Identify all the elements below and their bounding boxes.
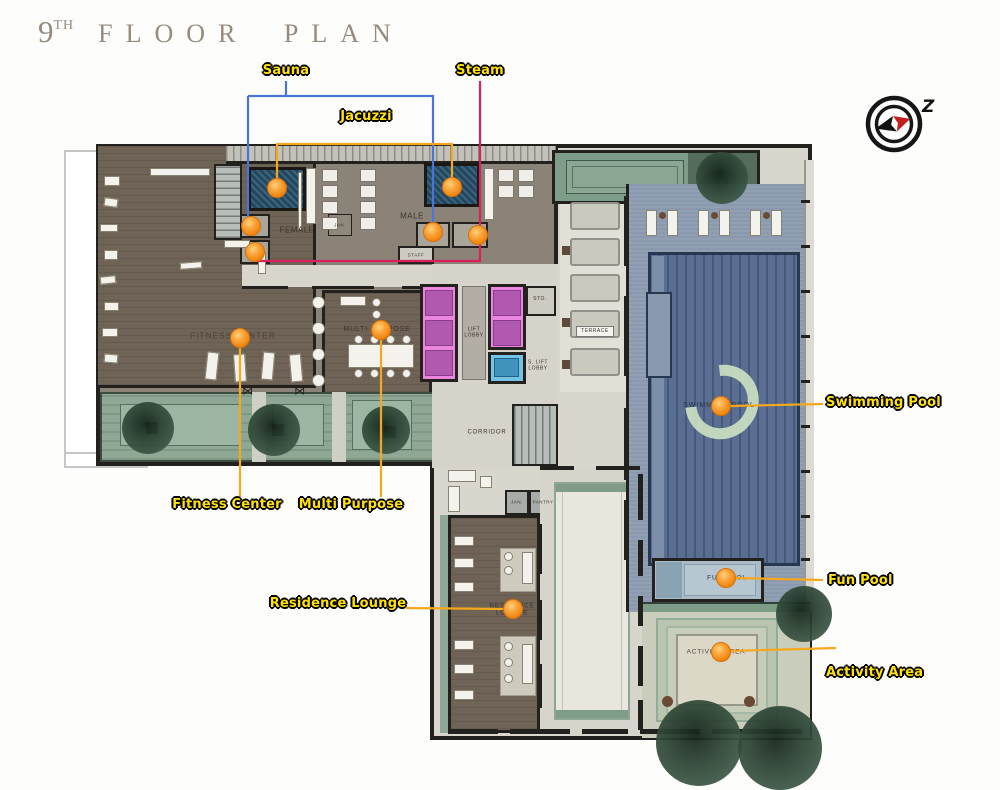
walkway-tick <box>801 245 810 248</box>
wall-segment <box>538 600 542 640</box>
service-lift-lobby-label: S. LIFT LOBBY <box>528 360 548 372</box>
terrace-deck <box>570 348 620 376</box>
side-table <box>372 298 381 307</box>
residence-label-line1: RESIDENCE <box>489 603 534 610</box>
outdoor-deck-edge-left <box>64 150 98 462</box>
wall-segment <box>596 466 640 470</box>
chair <box>504 642 513 651</box>
court-inner-line <box>562 490 622 712</box>
walkway-tick <box>801 470 810 473</box>
chair <box>504 566 513 575</box>
sun-lounger <box>667 210 678 236</box>
terrace-label: TERRACE <box>581 329 608 335</box>
tree <box>656 700 742 786</box>
walkway-tick <box>801 335 810 338</box>
fun-pool-deep-zone <box>656 562 682 598</box>
sun-lounger <box>698 210 709 236</box>
page-title: 9THFLOOR PLAN <box>38 14 404 50</box>
round-chair <box>312 322 325 335</box>
sun-lounger <box>750 210 761 236</box>
lounge-seat <box>454 690 474 700</box>
wall-segment <box>638 540 643 576</box>
annotation-label-fun-pool: Fun Pool <box>828 573 893 588</box>
toilet-stall <box>518 185 534 198</box>
elevator-cell <box>425 290 453 316</box>
chair <box>504 552 513 561</box>
chair <box>354 369 363 378</box>
window-mullion-symbol: ⋈ <box>294 386 306 399</box>
annotation-label-fitness-center: Fitness Center <box>172 497 281 512</box>
sun-lounger <box>646 210 657 236</box>
walkway-tick <box>801 515 810 518</box>
gym-equipment <box>102 328 118 337</box>
residence-label-line2: LOUNGE <box>496 610 528 617</box>
workout-bench <box>224 240 250 248</box>
garden-path <box>332 392 346 462</box>
side-table <box>372 310 381 319</box>
compass-inner-ring <box>877 107 912 142</box>
chair <box>386 335 395 344</box>
vanity-counter <box>484 168 494 220</box>
janitor-label-locker: JAN. <box>334 222 346 227</box>
toilet-stall <box>360 185 376 198</box>
east-walkway <box>804 160 814 612</box>
steam-room-male <box>452 222 488 248</box>
sun-lounger <box>771 210 782 236</box>
lounger-table <box>659 212 666 219</box>
wall-segment <box>582 729 628 734</box>
round-chair <box>312 348 325 361</box>
walkway-tick <box>801 425 810 428</box>
gym-equipment <box>104 353 119 363</box>
lounge-seat <box>454 664 474 674</box>
chair <box>354 335 363 344</box>
activity-planter-pot <box>744 696 755 707</box>
walkway-tick <box>801 380 810 383</box>
storage-room-label: STO. <box>533 297 547 303</box>
terrace-deck <box>570 274 620 302</box>
terrace-deck <box>570 238 620 266</box>
jacuzzi-pool-male <box>424 163 480 207</box>
pantry-label: PANTRY <box>533 499 554 504</box>
tree <box>776 586 832 642</box>
annotation-label-sauna: Sauna <box>263 63 309 78</box>
chair <box>386 369 395 378</box>
lounge-green-sliver <box>440 515 448 733</box>
toilet-stall <box>360 217 376 230</box>
annotation-label-multi-purpose: Multi Purpose <box>299 497 403 512</box>
female-locker-label: FEMALE <box>279 225 314 234</box>
toilet-stall <box>360 201 376 214</box>
wall-segment <box>624 196 629 266</box>
tree <box>362 406 410 454</box>
s-lift-label-line2: LOBBY <box>528 365 547 371</box>
wall-segment <box>638 700 643 730</box>
lounger-table <box>763 212 770 219</box>
corridor-label: CORRIDOR <box>467 430 506 437</box>
dumbbell-rack <box>150 168 210 176</box>
toilet-stall <box>322 169 338 182</box>
terrace-deck <box>570 202 620 230</box>
annotation-label-swimming-pool: Swimming Pool <box>826 395 941 410</box>
round-chair <box>312 296 325 309</box>
male-locker-label: MALE <box>400 211 424 220</box>
pool-side-alcove <box>646 292 672 378</box>
wall-segment <box>538 524 542 574</box>
chair <box>370 369 379 378</box>
lounge-seat <box>454 558 474 568</box>
annotation-label-jacuzzi: Jacuzzi <box>340 109 392 124</box>
residence-lounge-label: RESIDENCE LOUNGE <box>489 603 534 618</box>
toilet-stall <box>518 169 534 182</box>
sun-lounger <box>719 210 730 236</box>
cable-machine <box>298 172 302 230</box>
gym-equipment <box>100 275 117 285</box>
elevator-cell <box>425 350 453 376</box>
compass-icon: Z <box>858 84 948 162</box>
service-lift-cell <box>494 358 519 377</box>
tree <box>738 706 822 790</box>
gym-equipment <box>104 250 118 260</box>
court-green-cap <box>556 710 628 718</box>
page: { "title": { "floor": "9", "ordinal": "T… <box>0 0 1000 774</box>
lift-lobby-label-line2: LOBBY <box>464 332 483 338</box>
toilet-stall <box>360 169 376 182</box>
lounge-seat <box>454 536 474 546</box>
stairwell-east <box>512 404 558 466</box>
wall-segment <box>312 286 374 289</box>
toilet-stall <box>322 185 338 198</box>
chair <box>402 369 411 378</box>
fun-pool-label: FUN POOL <box>707 574 747 581</box>
floor-number: 9 <box>38 14 54 49</box>
round-chair <box>312 374 325 387</box>
fitness-room-label: FITNESS CENTER <box>190 331 276 340</box>
chair <box>370 335 379 344</box>
chair <box>402 335 411 344</box>
annotation-label-residence-lounge: Residence Lounge <box>270 596 407 611</box>
stairwell-west <box>214 164 242 240</box>
multi-purpose-room-label: MULTI PURPOSE <box>343 326 410 334</box>
treadmill <box>261 352 275 381</box>
lounge-sofa <box>522 552 533 584</box>
wall-segment <box>624 500 629 560</box>
walkway-tick <box>801 558 810 561</box>
tree <box>122 402 174 454</box>
vanity-counter <box>306 168 316 224</box>
toilet-stall <box>498 185 514 198</box>
compass-north-letter: Z <box>921 97 935 117</box>
gym-equipment <box>100 224 118 232</box>
tree <box>248 404 300 456</box>
activity-area-court <box>676 634 758 706</box>
lounge-seat <box>454 582 474 592</box>
sauna-room-male <box>416 222 450 248</box>
treadmill <box>289 354 303 383</box>
toilet-stall <box>322 201 338 214</box>
lobby-sofa <box>448 486 460 512</box>
chair <box>504 674 513 683</box>
cabinet <box>340 296 366 306</box>
lobby-table <box>480 476 492 488</box>
tree <box>696 152 748 204</box>
lounge-seat <box>454 640 474 650</box>
gym-equipment <box>104 176 120 186</box>
lounger-table <box>711 212 718 219</box>
wall-segment <box>638 474 643 520</box>
activity-area-label: ACTIVITY AREA <box>687 648 746 655</box>
wall-segment <box>242 286 288 289</box>
conference-table <box>348 344 414 368</box>
janitor-label-lounge: JAN. <box>511 499 523 504</box>
wall-segment <box>448 729 498 734</box>
wall-segment <box>638 646 643 686</box>
workout-bench <box>258 252 266 274</box>
gym-equipment <box>104 302 119 311</box>
swimming-pool-label: SWIMMING POOL <box>683 402 755 410</box>
treadmill <box>233 354 247 383</box>
wall-segment <box>540 466 574 470</box>
elevator-cell <box>425 320 453 346</box>
wall-segment <box>624 296 629 376</box>
floor-plan-words: FLOOR PLAN <box>98 19 404 48</box>
lounge-sofa <box>522 644 533 684</box>
floor-plan-canvas: FITNESS CENTER FEMALE MALE JAN. STAFF <box>0 0 1000 774</box>
gym-equipment <box>103 197 118 208</box>
elevator-cell <box>493 320 521 346</box>
staff-room-label: STAFF <box>408 252 424 257</box>
walkway-tick <box>801 200 810 203</box>
annotation-label-steam: Steam <box>456 63 504 78</box>
annotation-label-activity-area: Activity Area <box>826 665 923 680</box>
window-mullion-symbol: ⋈ <box>242 386 254 399</box>
lobby-sofa <box>448 470 476 482</box>
wall-segment <box>538 664 542 708</box>
court-green-cap <box>556 484 628 492</box>
chair <box>504 658 513 667</box>
wall-segment <box>510 729 570 734</box>
activity-planter-pot <box>662 696 673 707</box>
floor-ordinal: TH <box>54 18 75 33</box>
walkway-tick <box>801 290 810 293</box>
lift-lobby-label: LIFT LOBBY <box>464 327 483 339</box>
wall-segment <box>638 596 643 626</box>
toilet-stall <box>498 169 514 182</box>
elevator-cell <box>493 290 521 316</box>
north-window-band <box>226 146 556 164</box>
sauna-room-female <box>240 214 270 238</box>
